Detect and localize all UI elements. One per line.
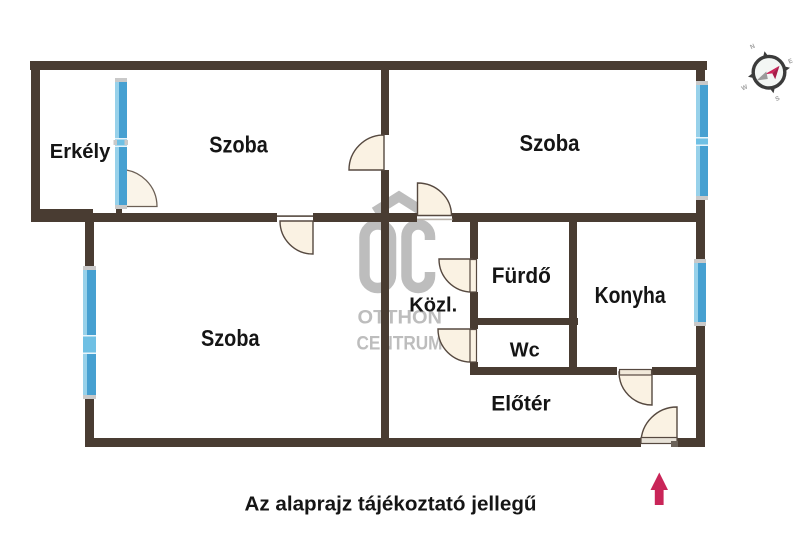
- svg-text:Szoba: Szoba: [201, 325, 260, 351]
- svg-text:Közl.: Közl.: [409, 295, 457, 317]
- svg-text:E: E: [787, 57, 794, 65]
- svg-text:Az alaprajz tájékoztató jelleg: Az alaprajz tájékoztató jellegű: [245, 493, 537, 516]
- svg-text:Szoba: Szoba: [520, 130, 580, 156]
- svg-text:Wc: Wc: [510, 339, 540, 361]
- svg-text:W: W: [741, 84, 749, 93]
- svg-text:Szoba: Szoba: [209, 131, 268, 157]
- svg-text:Fürdő: Fürdő: [492, 263, 551, 288]
- svg-text:Előtér: Előtér: [491, 392, 551, 416]
- svg-text:Erkély: Erkély: [50, 141, 111, 163]
- svg-text:CENTRUM: CENTRUM: [357, 333, 443, 355]
- svg-text:S: S: [774, 95, 781, 103]
- svg-text:N: N: [749, 43, 756, 51]
- svg-text:Konyha: Konyha: [595, 282, 667, 308]
